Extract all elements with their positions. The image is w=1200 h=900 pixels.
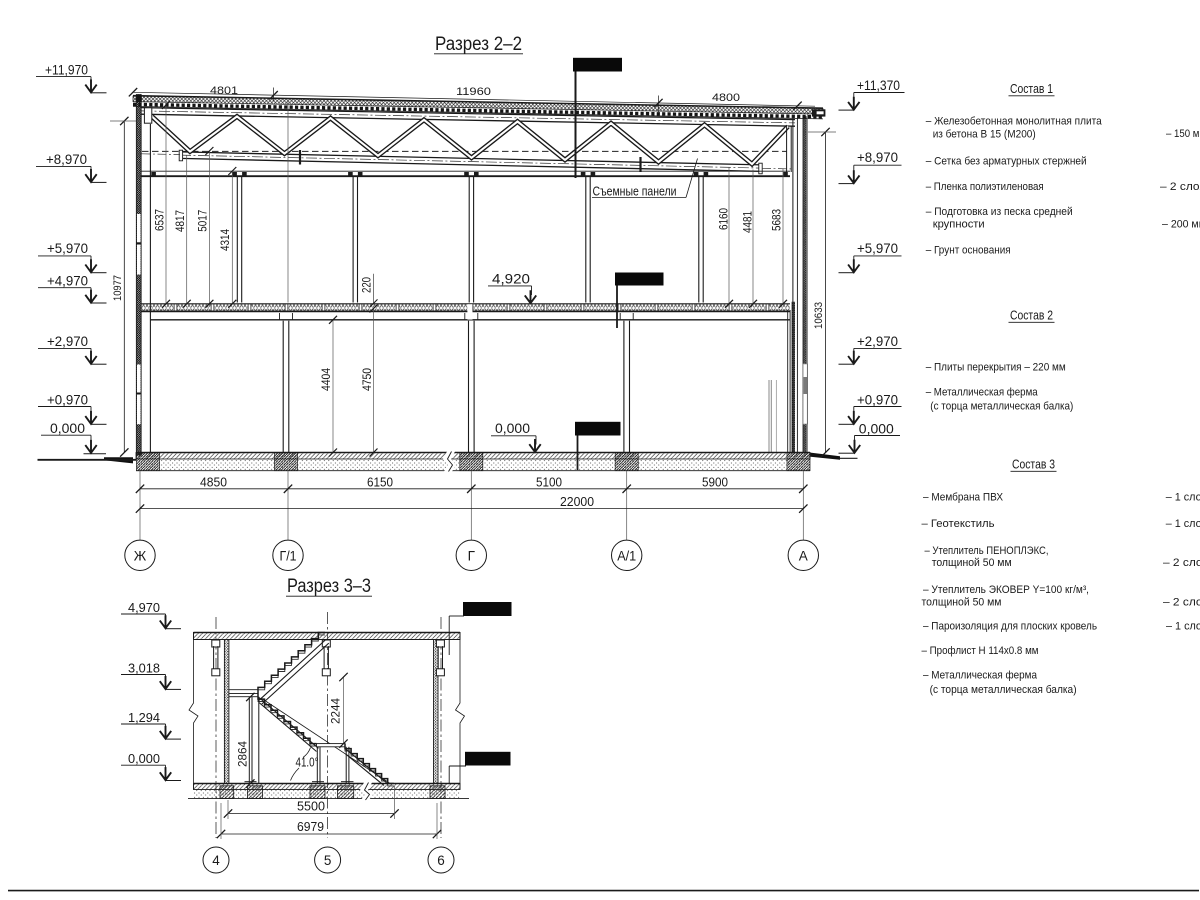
svg-text:0,000: 0,000	[50, 421, 85, 436]
svg-text:из бетона В 15 (М200): из бетона В 15 (М200)	[933, 129, 1036, 141]
svg-text:5017: 5017	[195, 209, 209, 231]
svg-text:– 1 слой: – 1 слой	[1166, 621, 1200, 633]
svg-text:+8,970: +8,970	[857, 150, 898, 165]
svg-text:+0,970: +0,970	[47, 392, 88, 407]
svg-text:+2,970: +2,970	[47, 334, 88, 349]
svg-text:Разрез 3–3: Разрез 3–3	[287, 576, 371, 597]
svg-text:4404: 4404	[319, 368, 333, 391]
svg-text:– Металлическая ферма: – Металлическая ферма	[926, 386, 1039, 398]
svg-text:10977: 10977	[112, 275, 124, 301]
svg-text:6: 6	[437, 853, 445, 868]
svg-text:0,000: 0,000	[859, 421, 894, 436]
svg-text:– Геотекстиль: – Геотекстиль	[922, 518, 995, 530]
svg-text:Г: Г	[468, 548, 476, 563]
svg-text:– Грунт основания: – Грунт основания	[926, 244, 1011, 256]
svg-text:– Утеплитель ПЕНОПЛЭКС,: – Утеплитель ПЕНОПЛЭКС,	[925, 545, 1049, 557]
svg-text:А: А	[799, 548, 808, 563]
svg-text:4,920: 4,920	[492, 271, 530, 286]
svg-text:6150: 6150	[367, 474, 393, 489]
svg-text:+4,970: +4,970	[47, 274, 88, 289]
svg-text:4481: 4481	[741, 211, 755, 233]
svg-text:Г/1: Г/1	[280, 548, 297, 563]
svg-text:4,970: 4,970	[128, 600, 160, 615]
svg-text:– Плиты перекрытия – 220 мм: – Плиты перекрытия – 220 мм	[926, 361, 1066, 373]
svg-text:5100: 5100	[536, 474, 562, 489]
svg-text:+2,970: +2,970	[857, 334, 898, 349]
svg-text:– 1 слой: – 1 слой	[1166, 492, 1200, 504]
svg-text:– Утеплитель ЭКОВЕР Y=100 кг/м: – Утеплитель ЭКОВЕР Y=100 кг/м³,	[923, 584, 1089, 596]
svg-text:1,294: 1,294	[128, 710, 160, 725]
svg-text:22000: 22000	[560, 494, 594, 509]
svg-text:толщиной 50 мм: толщиной 50 мм	[932, 557, 1012, 569]
svg-text:4850: 4850	[200, 474, 227, 489]
svg-text:(с торца металлическая балка): (с торца металлическая балка)	[930, 400, 1073, 412]
svg-text:– 2 слоя: – 2 слоя	[1163, 597, 1200, 609]
svg-text:Разрез 2–2: Разрез 2–2	[435, 34, 522, 55]
svg-text:– Мембрана ПВХ: – Мембрана ПВХ	[923, 492, 1003, 504]
svg-text:2864: 2864	[236, 741, 250, 767]
svg-text:толщиной 50 мм: толщиной 50 мм	[922, 597, 1002, 609]
svg-text:+11,370: +11,370	[857, 78, 900, 93]
svg-text:3,018: 3,018	[128, 660, 160, 675]
svg-text:+8,970: +8,970	[46, 152, 87, 167]
svg-text:– 150 мм: – 150 мм	[1166, 128, 1200, 140]
svg-text:Съемные панели: Съемные панели	[593, 185, 677, 199]
svg-text:– 1 слой: – 1 слой	[1166, 518, 1200, 530]
svg-text:+5,970: +5,970	[857, 241, 898, 256]
svg-text:5: 5	[324, 853, 332, 868]
svg-text:– Пленка полиэтиленовая: – Пленка полиэтиленовая	[926, 181, 1044, 193]
svg-text:– Подготовка из песка средней: – Подготовка из песка средней	[926, 206, 1073, 218]
svg-text:220: 220	[360, 277, 374, 293]
svg-text:2244: 2244	[329, 698, 343, 724]
svg-text:– 2 слоя: – 2 слоя	[1163, 557, 1200, 569]
svg-text:+5,970: +5,970	[47, 241, 88, 256]
svg-text:4314: 4314	[218, 229, 232, 251]
svg-text:– Металлическая ферма: – Металлическая ферма	[923, 669, 1038, 681]
svg-text:4: 4	[212, 853, 220, 868]
svg-text:5900: 5900	[702, 474, 728, 489]
svg-text:4800: 4800	[712, 92, 740, 104]
svg-text:– Пароизоляция для плоских кро: – Пароизоляция для плоских кровель	[923, 621, 1097, 633]
svg-text:Состав 1: Состав 1	[1010, 82, 1053, 96]
svg-text:6160: 6160	[717, 208, 731, 230]
svg-text:Состав 3: Состав 3	[1012, 458, 1055, 472]
svg-text:(с торца металлическая балка): (с торца металлическая балка)	[930, 684, 1077, 696]
svg-text:41.0°: 41.0°	[296, 756, 319, 770]
svg-text:+11,970: +11,970	[45, 63, 88, 78]
svg-text:– Железобетонная монолитная п: – Железобетонная монолитная плита	[926, 115, 1103, 127]
svg-text:– Профлист Н 114х0.8 мм: – Профлист Н 114х0.8 мм	[922, 645, 1039, 657]
svg-text:6979: 6979	[297, 819, 324, 834]
svg-text:Состав 2: Состав 2	[1010, 309, 1053, 323]
svg-text:– 2 слоя: – 2 слоя	[1160, 181, 1200, 193]
svg-text:0,000: 0,000	[128, 751, 160, 766]
svg-text:– 200 мм: – 200 мм	[1162, 218, 1200, 230]
svg-text:10633: 10633	[813, 302, 825, 329]
svg-text:11960: 11960	[456, 86, 491, 98]
svg-text:+0,970: +0,970	[857, 392, 898, 407]
svg-text:4801: 4801	[210, 85, 238, 97]
svg-text:0,000: 0,000	[495, 421, 530, 436]
svg-text:4750: 4750	[360, 368, 374, 391]
svg-text:Ж: Ж	[134, 548, 147, 563]
svg-text:5683: 5683	[770, 209, 784, 231]
svg-text:– Сетка без арматурных стержне: – Сетка без арматурных стержней	[926, 155, 1087, 167]
svg-text:А/1: А/1	[617, 548, 636, 563]
svg-text:6537: 6537	[153, 209, 167, 231]
svg-text:4817: 4817	[173, 210, 187, 232]
svg-text:крупности: крупности	[933, 218, 985, 230]
svg-text:5500: 5500	[297, 799, 325, 814]
